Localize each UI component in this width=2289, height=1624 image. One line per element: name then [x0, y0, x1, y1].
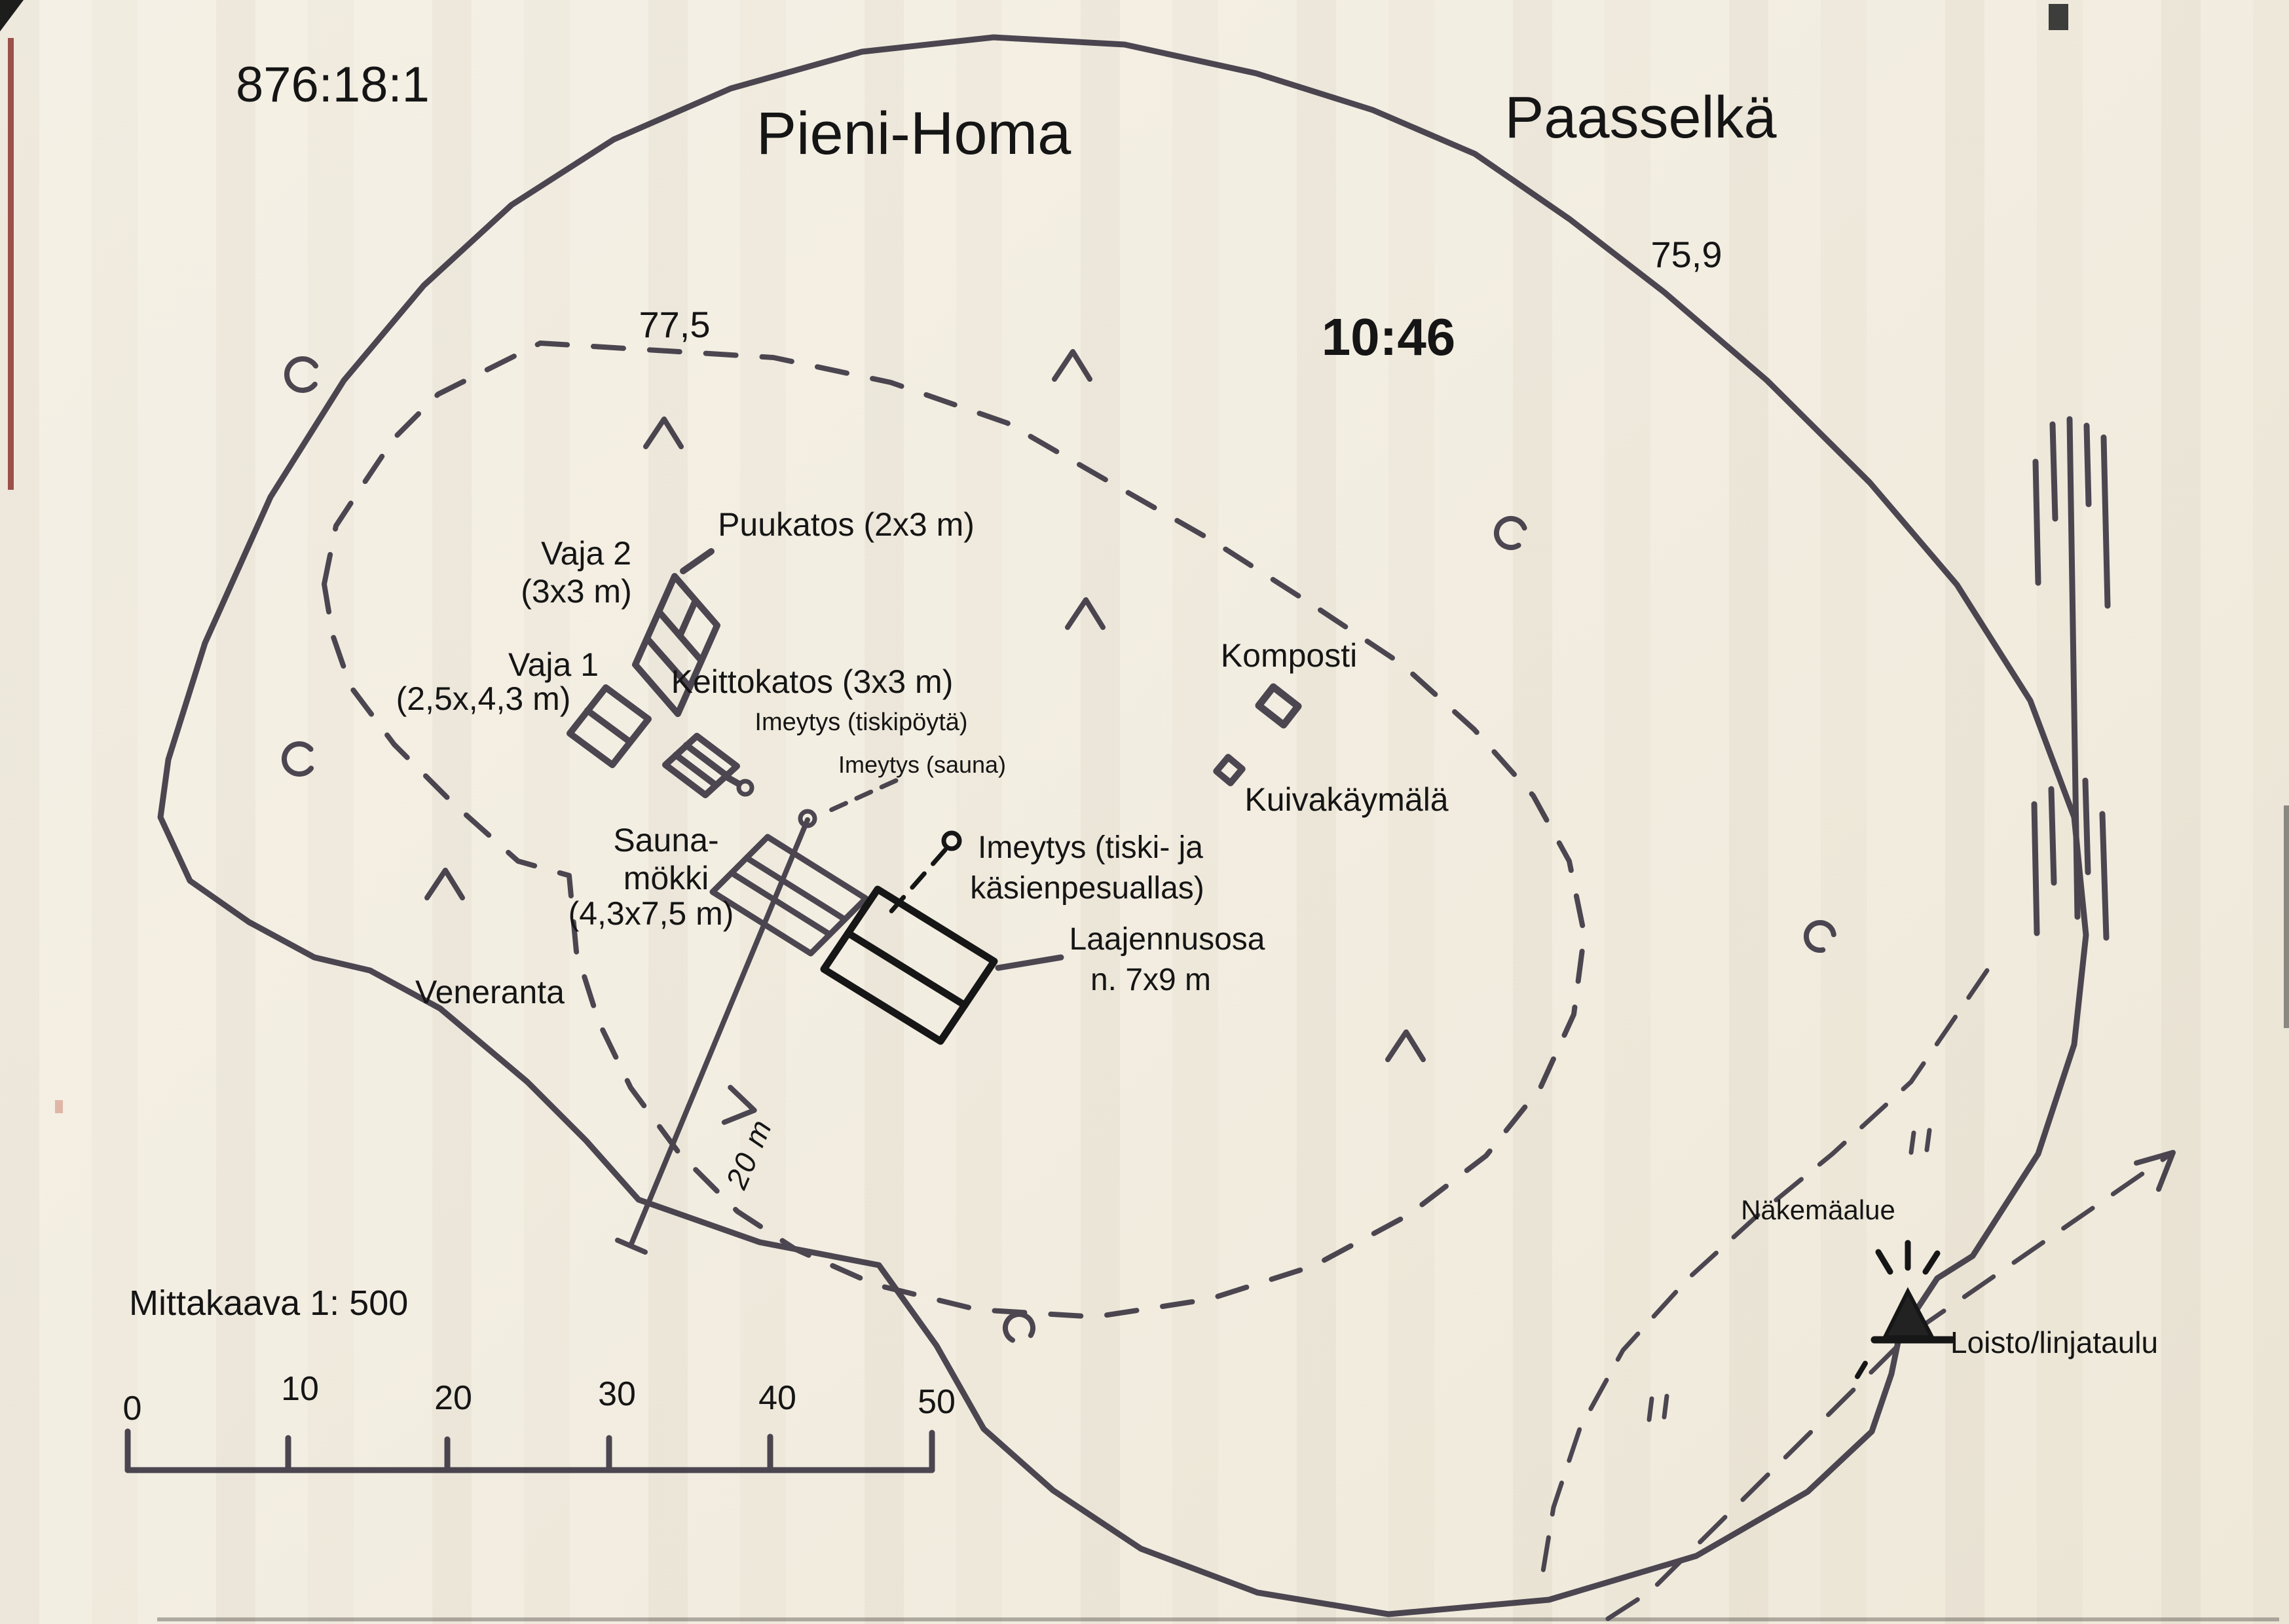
- scale-bar: [128, 1431, 932, 1470]
- vaja1-label-line2: (2,5x,4,3 m): [396, 680, 571, 717]
- scale-tick-40: 40: [758, 1379, 796, 1417]
- scan-red-edge-line: [8, 38, 14, 490]
- scan-top-right-mark: [2049, 4, 2068, 30]
- time-label: 10:46: [1322, 308, 1456, 366]
- contour-elevation-label: 77,5: [639, 304, 711, 345]
- imeytys-tiski-label-line1: Imeytys (tiski- ja: [978, 830, 1203, 865]
- chevron-symbol: [427, 870, 462, 898]
- vaja2-label-line2: (3x3 m): [521, 573, 631, 610]
- horseshoe-rock-symbol: [278, 738, 321, 781]
- scale-caption: Mittakaava 1: 500: [129, 1283, 408, 1323]
- imeytys-tiskipoyta-label: Imeytys (tiskipöytä): [754, 709, 967, 736]
- sight-lines: [1540, 970, 2173, 1619]
- imeytys-features: [739, 781, 959, 914]
- building-keittokatos: [665, 736, 739, 795]
- map-labels: 876:18:1 Pieni-Homa Paasselkä 75,9 10:46…: [123, 57, 2159, 1428]
- lake-elevation-label: 75,9: [1651, 234, 1722, 275]
- contour-77-5-dashed: [324, 343, 1584, 1317]
- nakemaalue-label: Näkemäalue: [1741, 1194, 1895, 1225]
- vaja2-label-line1: Vaja 2: [541, 535, 631, 572]
- scan-bottom-edge: [157, 1617, 2279, 1621]
- sauna-label-line1: Sauna-: [613, 822, 718, 858]
- scan-corner-mark: [0, 0, 24, 31]
- building-vaja1: [570, 688, 648, 765]
- horseshoe-rock-symbol: [1804, 921, 1836, 953]
- lake-name-label: Paasselkä: [1504, 85, 1777, 151]
- chevron-symbol: [646, 419, 681, 447]
- sauna-label-line2: mökki: [623, 860, 709, 896]
- horseshoe-rock-symbol: [1000, 1309, 1037, 1346]
- scale-tick-50: 50: [918, 1383, 956, 1421]
- scale-tick-30: 30: [598, 1375, 636, 1413]
- scale-tick-10: 10: [281, 1370, 319, 1408]
- puukatos-label: Puukatos (2x3 m): [718, 506, 975, 543]
- imeytys-tiskipoyta-circle: [739, 781, 752, 794]
- parcel-id-label: 876:18:1: [236, 57, 430, 113]
- island-name-label: Pieni-Homa: [756, 100, 1071, 167]
- scanned-site-plan: 876:18:1 Pieni-Homa Paasselkä 75,9 10:46…: [0, 0, 2289, 1624]
- komposti-label: Komposti: [1221, 637, 1357, 674]
- scan-artifacts: [0, 0, 2289, 1621]
- laajennusosa-label-line1: Laajennusosa: [1070, 922, 1265, 957]
- building-laajennusosa: [824, 889, 1061, 1041]
- scale-tick-0: 0: [123, 1390, 142, 1428]
- horseshoe-rock-symbol: [280, 352, 325, 397]
- sauna-label-line3: (4,3x7,5 m): [568, 895, 734, 932]
- chevron-symbol: [1054, 352, 1090, 379]
- line-marker-symbol: [2034, 419, 2108, 938]
- komposti-symbol: [1259, 687, 1298, 725]
- imeytys-tiski-label-line2: käsienpesuallas): [970, 871, 1204, 906]
- imeytys-sauna-label: Imeytys (sauna): [838, 751, 1006, 778]
- distance-20m-label: 20 m: [718, 1114, 778, 1194]
- veneranta-label: Veneranta: [415, 974, 565, 1010]
- horseshoe-rock-symbol: [1491, 513, 1531, 553]
- kuivakaymala-symbol: [1216, 757, 1242, 783]
- scan-right-sliver: [2284, 805, 2289, 1028]
- imeytys-tiski-circle: [944, 833, 959, 849]
- island-shoreline: [160, 37, 2086, 1614]
- keittokatos-label: Keittokatos (3x3 m): [671, 663, 954, 700]
- chevron-symbol: [1388, 1032, 1423, 1060]
- imeytys-tiski-leader: [889, 850, 945, 914]
- imeytys-sauna-leader: [827, 781, 896, 812]
- loisto-label: Loisto/linjataulu: [1950, 1325, 2158, 1359]
- scale-tick-20: 20: [434, 1379, 472, 1417]
- site-plan-canvas: 876:18:1 Pieni-Homa Paasselkä 75,9 10:46…: [0, 0, 2289, 1624]
- kuivakaymala-label: Kuivakäymälä: [1244, 781, 1448, 818]
- laajennusosa-label-line2: n. 7x9 m: [1090, 963, 1211, 997]
- chevron-symbol: [1068, 600, 1103, 627]
- vaja1-label-line1: Vaja 1: [508, 646, 599, 683]
- sight-line-west: [1540, 970, 1987, 1587]
- scan-pink-mark: [55, 1100, 63, 1113]
- beacon-icon: [1857, 1243, 1952, 1376]
